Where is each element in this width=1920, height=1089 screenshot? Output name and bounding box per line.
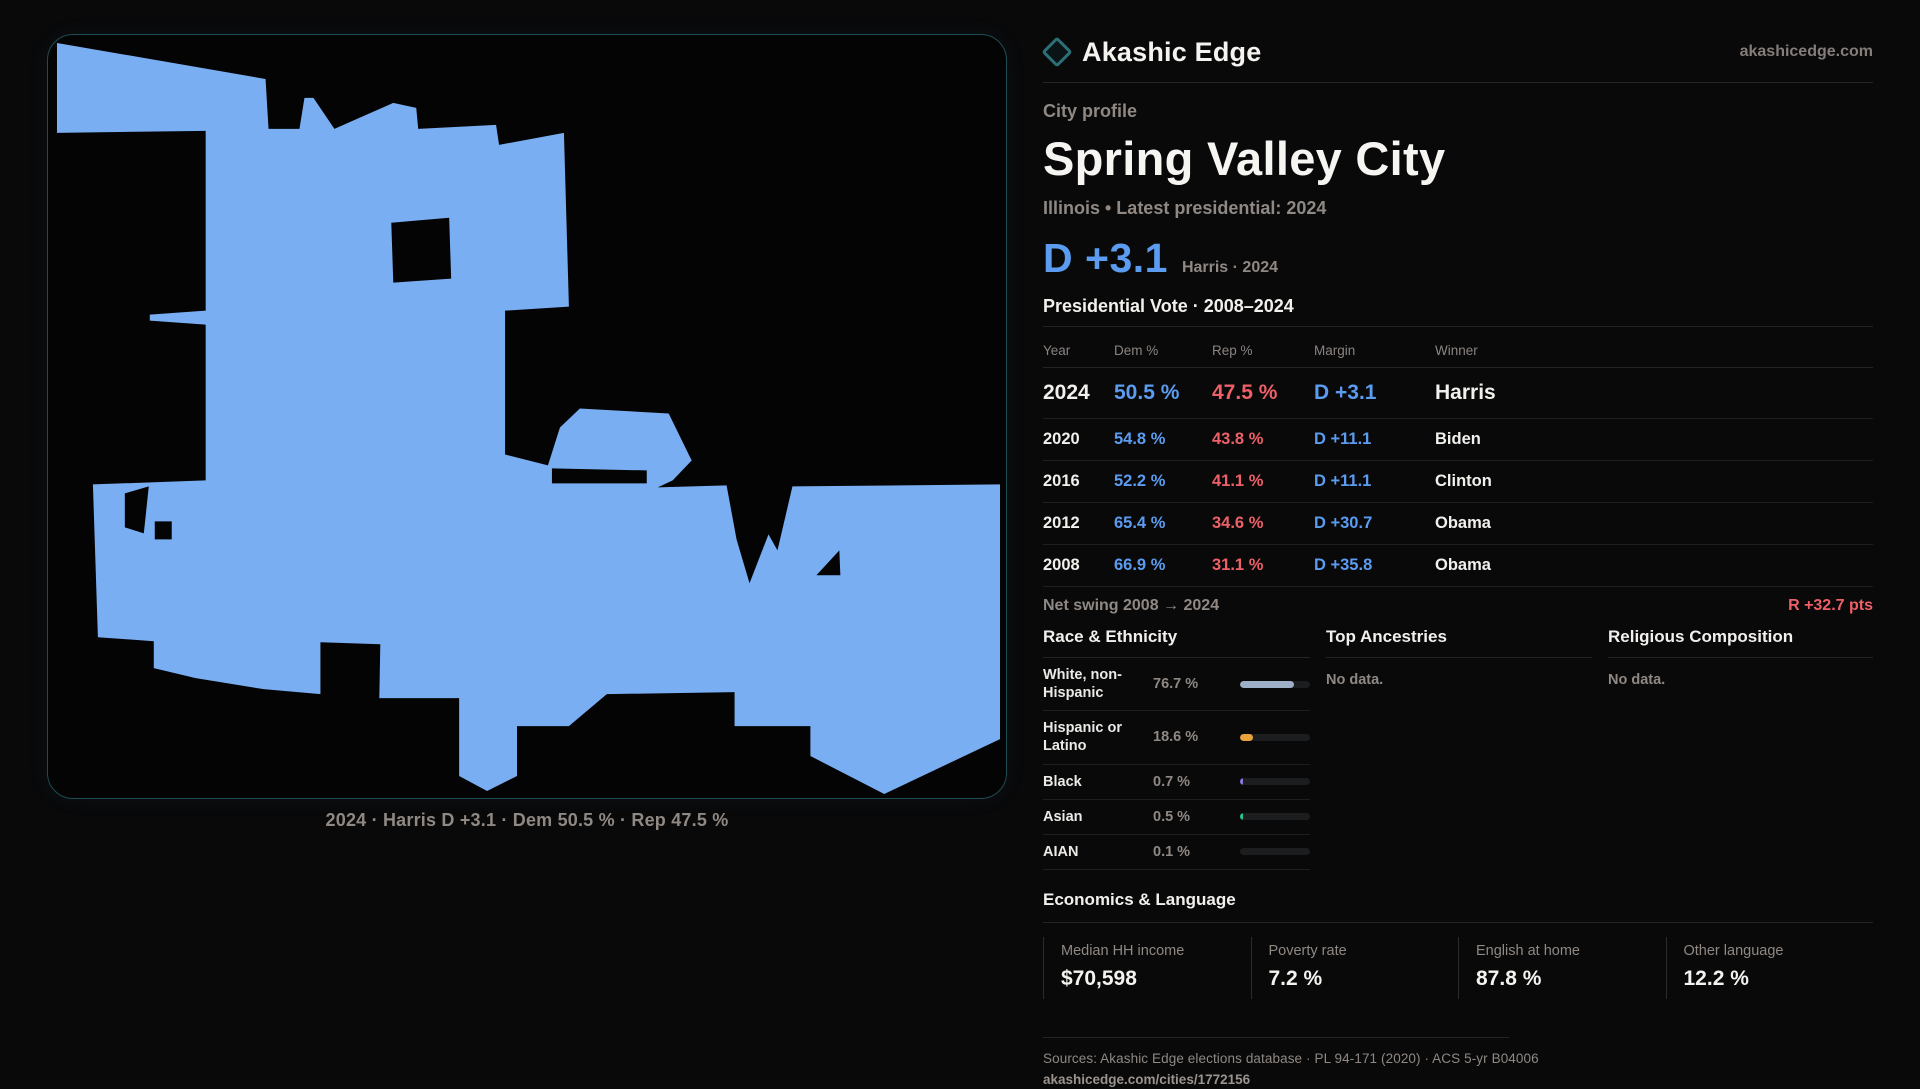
city-map-panel xyxy=(47,34,1007,799)
race-bar-fill xyxy=(1240,681,1294,688)
ancestries-empty-state: No data. xyxy=(1326,672,1592,688)
stat-card: Median HH income $70,598 xyxy=(1043,937,1251,999)
brand-name: Akashic Edge xyxy=(1082,37,1261,68)
religion-section-title: Religious Composition xyxy=(1608,627,1873,658)
race-value: 76.7 % xyxy=(1153,676,1235,692)
cell-rep-pct: 31.1 % xyxy=(1212,556,1314,575)
table-header-row: Year Dem % Rep % Margin Winner xyxy=(1043,339,1873,368)
cell-dem-pct: 50.5 % xyxy=(1114,381,1212,405)
table-top-divider xyxy=(1043,326,1873,327)
col-header-winner: Winner xyxy=(1435,343,1873,358)
col-header-rep: Rep % xyxy=(1212,343,1314,358)
kicker: City profile xyxy=(1043,101,1873,122)
cell-margin: D +11.1 xyxy=(1314,472,1435,491)
col-header-margin: Margin xyxy=(1314,343,1435,358)
net-swing-row: Net swing 2008 → 2024 R +32.7 pts xyxy=(1043,587,1873,615)
demographics-section: Race & Ethnicity White, non-Hispanic 76.… xyxy=(1043,627,1873,870)
cell-year: 2020 xyxy=(1043,430,1114,449)
profile-panel: Akashic Edge akashicedge.com City profil… xyxy=(1043,30,1873,1089)
race-row: Asian 0.5 % xyxy=(1043,800,1310,835)
economics-stats: Median HH income $70,598 Poverty rate 7.… xyxy=(1043,937,1873,999)
race-label: Asian xyxy=(1043,808,1153,826)
stat-card: Poverty rate 7.2 % xyxy=(1251,937,1459,999)
headline-margin-block: D +3.1 Harris · 2024 xyxy=(1043,235,1873,282)
race-bar-track xyxy=(1240,681,1310,688)
race-bar-fill xyxy=(1240,734,1253,741)
presidential-vote-table: Year Dem % Rep % Margin Winner 2024 50.5… xyxy=(1043,339,1873,587)
cell-year: 2024 xyxy=(1043,381,1114,405)
table-row: 2012 65.4 % 34.6 % D +30.7 Obama xyxy=(1043,503,1873,545)
sources-line: Sources: Akashic Edge elections database… xyxy=(1043,1051,1873,1066)
stat-value: $70,598 xyxy=(1061,967,1251,991)
cell-winner: Obama xyxy=(1435,514,1873,533)
race-label: Hispanic or Latino xyxy=(1043,719,1153,755)
cell-dem-pct: 65.4 % xyxy=(1114,514,1212,533)
headline-note: Harris · 2024 xyxy=(1182,259,1278,277)
stat-value: 87.8 % xyxy=(1476,967,1666,991)
race-label: Black xyxy=(1043,773,1153,791)
race-bar-track xyxy=(1240,778,1310,785)
map-caption: 2024 · Harris D +3.1 · Dem 50.5 % · Rep … xyxy=(47,810,1007,831)
cell-margin: D +3.1 xyxy=(1314,381,1435,405)
cell-dem-pct: 66.9 % xyxy=(1114,556,1212,575)
col-header-year: Year xyxy=(1043,343,1114,358)
col-header-dem: Dem % xyxy=(1114,343,1212,358)
cell-year: 2008 xyxy=(1043,556,1114,575)
race-label: White, non-Hispanic xyxy=(1043,666,1153,702)
cell-rep-pct: 47.5 % xyxy=(1212,381,1314,405)
race-value: 18.6 % xyxy=(1153,729,1235,745)
brand-diamond-icon xyxy=(1041,36,1072,67)
cell-winner: Obama xyxy=(1435,556,1873,575)
cell-year: 2016 xyxy=(1043,472,1114,491)
race-section-title: Race & Ethnicity xyxy=(1043,627,1310,658)
footer-divider xyxy=(1043,1037,1509,1038)
cell-winner: Harris xyxy=(1435,381,1873,405)
ancestries-section-title: Top Ancestries xyxy=(1326,627,1592,658)
race-bar-track xyxy=(1240,848,1310,855)
cell-rep-pct: 34.6 % xyxy=(1212,514,1314,533)
permalink[interactable]: akashicedge.com/cities/1772156 xyxy=(1043,1072,1250,1087)
religion-column: Religious Composition No data. xyxy=(1608,627,1873,870)
net-swing-label: Net swing 2008 → 2024 xyxy=(1043,597,1219,615)
table-row: 2016 52.2 % 41.1 % D +11.1 Clinton xyxy=(1043,461,1873,503)
economics-section-title: Economics & Language xyxy=(1043,890,1873,923)
stat-label: Median HH income xyxy=(1061,943,1251,959)
cell-margin: D +30.7 xyxy=(1314,514,1435,533)
page-title: Spring Valley City xyxy=(1043,131,1873,186)
race-value: 0.5 % xyxy=(1153,809,1235,825)
stat-label: Other language xyxy=(1684,943,1874,959)
race-row: Hispanic or Latino 18.6 % xyxy=(1043,711,1310,764)
cell-rep-pct: 43.8 % xyxy=(1212,430,1314,449)
stat-value: 7.2 % xyxy=(1269,967,1459,991)
stat-label: Poverty rate xyxy=(1269,943,1459,959)
stat-value: 12.2 % xyxy=(1684,967,1874,991)
race-value: 0.1 % xyxy=(1153,844,1235,860)
race-bar-track xyxy=(1240,734,1310,741)
header-divider xyxy=(1043,82,1873,83)
race-row: Black 0.7 % xyxy=(1043,765,1310,800)
site-domain-link[interactable]: akashicedge.com xyxy=(1740,43,1873,61)
cell-margin: D +35.8 xyxy=(1314,556,1435,575)
table-row: 2008 66.9 % 31.1 % D +35.8 Obama xyxy=(1043,545,1873,587)
state-meta: Illinois • Latest presidential: 2024 xyxy=(1043,198,1873,219)
race-row: AIAN 0.1 % xyxy=(1043,835,1310,870)
cell-winner: Biden xyxy=(1435,430,1873,449)
race-bar-fill xyxy=(1240,813,1243,820)
cell-dem-pct: 52.2 % xyxy=(1114,472,1212,491)
ancestries-column: Top Ancestries No data. xyxy=(1326,627,1592,870)
race-row: White, non-Hispanic 76.7 % xyxy=(1043,658,1310,711)
stat-card: Other language 12.2 % xyxy=(1666,937,1874,999)
cell-margin: D +11.1 xyxy=(1314,430,1435,449)
cell-winner: Clinton xyxy=(1435,472,1873,491)
city-boundary-map xyxy=(48,35,1006,798)
net-swing-value: R +32.7 pts xyxy=(1788,597,1873,615)
cell-rep-pct: 41.1 % xyxy=(1212,472,1314,491)
race-bar-track xyxy=(1240,813,1310,820)
cell-year: 2012 xyxy=(1043,514,1114,533)
header: Akashic Edge akashicedge.com xyxy=(1043,30,1873,74)
race-value: 0.7 % xyxy=(1153,774,1235,790)
race-bar-fill xyxy=(1240,778,1243,785)
stat-card: English at home 87.8 % xyxy=(1458,937,1666,999)
vote-table-title: Presidential Vote · 2008–2024 xyxy=(1043,296,1873,317)
race-label: AIAN xyxy=(1043,843,1153,861)
cell-dem-pct: 54.8 % xyxy=(1114,430,1212,449)
race-ethnicity-column: Race & Ethnicity White, non-Hispanic 76.… xyxy=(1043,627,1310,870)
table-row: 2020 54.8 % 43.8 % D +11.1 Biden xyxy=(1043,419,1873,461)
religion-empty-state: No data. xyxy=(1608,672,1873,688)
headline-margin: D +3.1 xyxy=(1043,235,1168,282)
stat-label: English at home xyxy=(1476,943,1666,959)
table-row: 2024 50.5 % 47.5 % D +3.1 Harris xyxy=(1043,368,1873,419)
